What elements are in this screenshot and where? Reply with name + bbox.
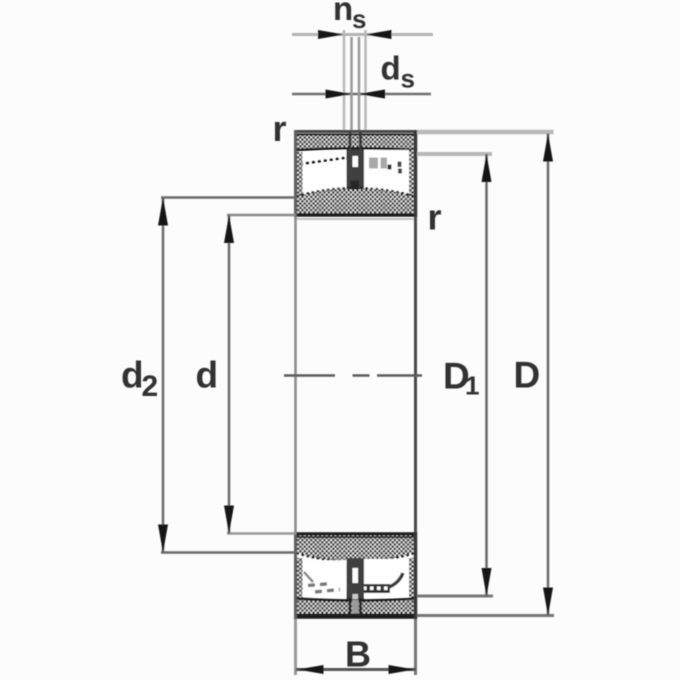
svg-text:D: D: [514, 355, 541, 396]
svg-text:s: s: [352, 4, 366, 34]
svg-text:s: s: [401, 64, 415, 94]
svg-text:r: r: [273, 108, 287, 149]
svg-text:r: r: [428, 197, 442, 238]
svg-text:d: d: [196, 355, 219, 396]
svg-text:1: 1: [465, 371, 479, 401]
svg-text:d: d: [121, 355, 144, 396]
svg-text:B: B: [345, 634, 371, 675]
svg-text:n: n: [333, 0, 353, 27]
svg-text:2: 2: [142, 370, 159, 403]
svg-text:d: d: [381, 50, 401, 87]
